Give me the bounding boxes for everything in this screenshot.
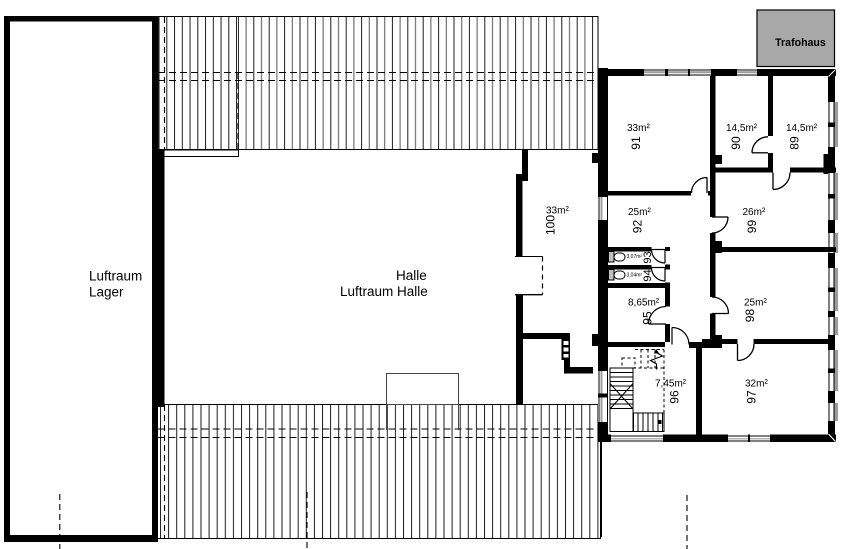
svg-text:99: 99 [745,220,759,234]
svg-text:90: 90 [729,136,743,150]
svg-text:25m²: 25m² [744,298,767,309]
svg-text:33m²: 33m² [627,123,650,134]
svg-text:94: 94 [642,269,654,281]
svg-text:Luftraum: Luftraum [89,269,142,284]
svg-text:93: 93 [642,251,654,263]
svg-text:8,65m²: 8,65m² [628,298,660,309]
svg-text:32m²: 32m² [745,379,768,390]
svg-text:95: 95 [641,311,655,325]
svg-text:Trafohaus: Trafohaus [775,37,826,49]
svg-text:14,5m²: 14,5m² [726,123,758,134]
svg-text:97: 97 [745,390,759,404]
svg-text:92: 92 [631,220,645,234]
svg-text:Halle: Halle [396,268,427,283]
svg-text:Lager: Lager [89,285,124,300]
svg-text:25m²: 25m² [628,207,651,218]
svg-text:3,07m²: 3,07m² [627,254,643,260]
svg-text:Luftraum Halle: Luftraum Halle [340,284,428,299]
svg-text:89: 89 [788,136,802,150]
svg-text:14,5m²: 14,5m² [786,123,818,134]
svg-text:98: 98 [743,309,757,323]
svg-text:7,45m²: 7,45m² [655,379,687,390]
svg-text:33m²: 33m² [546,206,569,217]
svg-text:3,04m²: 3,04m² [627,272,643,278]
svg-text:96: 96 [668,390,682,404]
svg-text:91: 91 [629,136,643,150]
svg-text:26m²: 26m² [743,207,766,218]
svg-text:100: 100 [544,215,558,235]
